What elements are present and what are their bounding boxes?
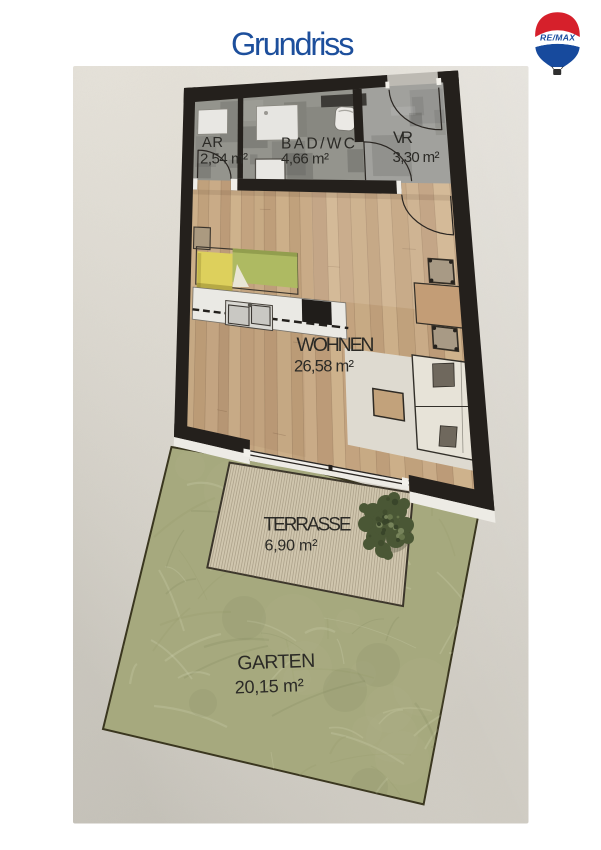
svg-text:WOHNEN: WOHNEN xyxy=(297,334,375,356)
svg-text:TERRASSE: TERRASSE xyxy=(264,515,352,536)
svg-text:GARTEN: GARTEN xyxy=(237,650,316,675)
svg-text:Grundriss: Grundriss xyxy=(231,26,355,62)
svg-text:VR: VR xyxy=(393,128,413,147)
svg-text:AR: AR xyxy=(202,135,223,151)
svg-text:3,30 m²: 3,30 m² xyxy=(393,149,440,166)
svg-text:20,15 m²: 20,15 m² xyxy=(234,675,304,697)
svg-text:2,54 m²: 2,54 m² xyxy=(200,151,248,168)
svg-text:6,90 m²: 6,90 m² xyxy=(265,538,319,555)
svg-text:26,58 m²: 26,58 m² xyxy=(294,358,355,376)
svg-text:RE/MAX: RE/MAX xyxy=(540,33,576,43)
svg-text:4,66 m²: 4,66 m² xyxy=(281,151,329,168)
